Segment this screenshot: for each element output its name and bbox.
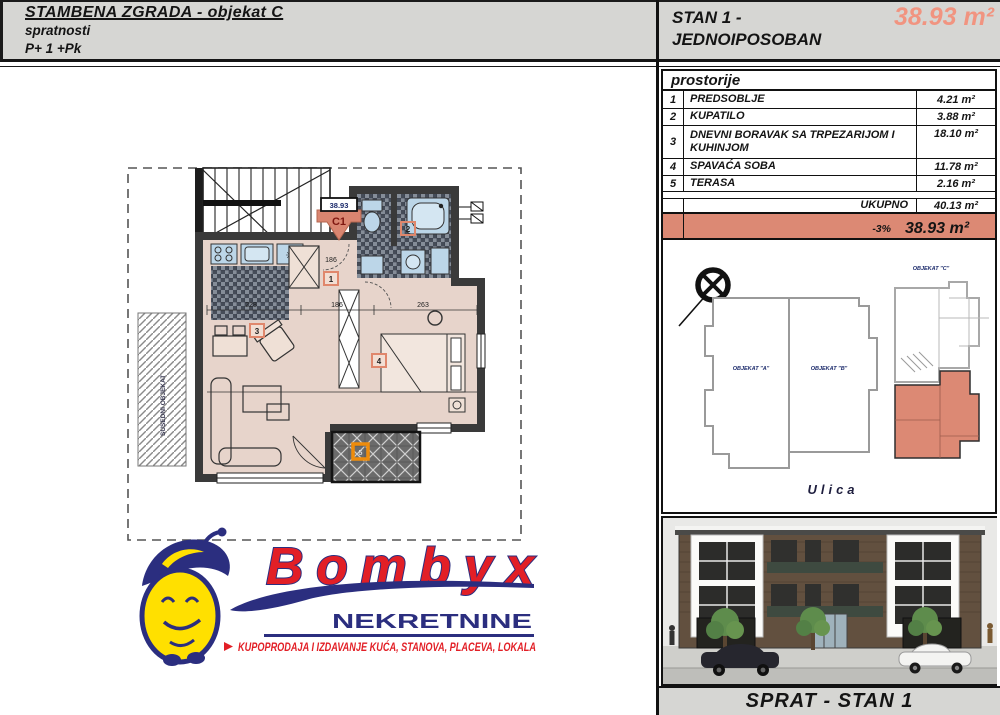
building-floors: P+ 1 +Pk xyxy=(25,40,656,58)
building-c-label: OBJEKAT "C" xyxy=(913,266,950,272)
table-row: 4 SPAVAĆA SOBA 11.78 m² xyxy=(663,159,995,176)
header-divider-line xyxy=(0,66,656,67)
table-row: 1 PREDSOBLJE 4.21 m² xyxy=(663,91,995,109)
building-a-label: OBJEKAT "A" xyxy=(733,366,770,372)
building-title: STAMBENA ZGRADA - objekat C xyxy=(25,4,656,22)
table-row: 5 TERASA 2.16 m² xyxy=(663,176,995,192)
svg-text:SUSEDNI OBJEKAT: SUSEDNI OBJEKAT xyxy=(160,375,167,436)
right-panel: STAN 1 - JEDNOIPOSOBAN 38.93 m² prostori… xyxy=(656,0,1000,715)
row-number: 2 xyxy=(663,109,684,125)
row-area: 4.21 m² xyxy=(916,91,995,108)
row-number: 4 xyxy=(663,159,684,175)
table-row: 3 DNEVNI BORAVAK SA TRPEZARIJOM I KUHINJ… xyxy=(663,126,995,159)
meter-symbols xyxy=(459,202,483,223)
svg-text:1: 1 xyxy=(329,275,334,284)
svg-text:38.93: 38.93 xyxy=(330,201,349,210)
agency-logo: Bombyx NEKRETNINE KUPOPRODAJA I IZDAVANJ… xyxy=(128,522,548,672)
neighbour-building-hatch: SUSEDNI OBJEKAT xyxy=(138,313,186,466)
svg-text:C1: C1 xyxy=(332,216,346,228)
bullet-arrow-icon xyxy=(224,642,233,651)
row-area: 3.88 m² xyxy=(916,109,995,125)
building-b-label: OBJEKAT "B" xyxy=(811,366,848,372)
row-name: DNEVNI BORAVAK SA TRPEZARIJOM I KUHINJOM xyxy=(684,126,916,158)
table-spacer xyxy=(663,192,995,199)
total-row: UKUPNO 40.13 m² xyxy=(663,199,995,214)
discount-area: 38.93 m² xyxy=(905,220,995,238)
row-name: TERASA xyxy=(684,176,916,191)
svg-text:2: 2 xyxy=(406,225,411,234)
row-area: 2.16 m² xyxy=(916,176,995,191)
unit-area: 38.93 m² xyxy=(894,3,994,32)
logo-rule xyxy=(264,634,534,637)
brand-tagline: KUPOPRODAJA I IZDAVANJE KUĆA, STANOVA, P… xyxy=(238,641,536,654)
unit-header-divider xyxy=(659,66,1000,67)
bathroom: 2 xyxy=(357,194,451,278)
row-area: 11.78 m² xyxy=(916,159,995,175)
footer-label: SPRAT - STAN 1 xyxy=(746,690,914,713)
rooms-table-caption: prostorije xyxy=(663,71,995,91)
floorplan-drawing: SUSEDNI OBJEKAT xyxy=(125,158,527,572)
unit-title-line2: JEDNOIPOSOBAN xyxy=(672,29,1000,51)
siteplan-box: OBJEKAT "C" OBJEKAT "A" OBJEKAT "B" Ulic… xyxy=(661,238,997,514)
svg-text:3: 3 xyxy=(255,327,260,336)
row-name: KUPATILO xyxy=(684,109,916,125)
row-name: PREDSOBLJE xyxy=(684,91,916,108)
building-header: STAMBENA ZGRADA - objekat C spratnosti P… xyxy=(0,0,656,62)
unit-header: STAN 1 - JEDNOIPOSOBAN 38.93 m² xyxy=(659,0,1000,62)
total-label: UKUPNO xyxy=(684,199,916,212)
discount-label: -3% xyxy=(663,223,905,235)
row-number: 1 xyxy=(663,91,684,108)
svg-text:186: 186 xyxy=(331,302,343,309)
building-c-outline xyxy=(895,282,989,458)
building-render xyxy=(663,518,997,684)
apartment-brochure-page: STAMBENA ZGRADA - objekat C spratnosti P… xyxy=(0,0,1000,715)
stairwell xyxy=(195,168,330,240)
svg-text:263: 263 xyxy=(417,302,429,309)
svg-text:5: 5 xyxy=(359,450,363,457)
street-label: Ulica xyxy=(807,482,858,497)
building-render-box xyxy=(661,516,997,686)
row-number: 5 xyxy=(663,176,684,191)
siteplan-drawing: OBJEKAT "C" OBJEKAT "A" OBJEKAT "B" Ulic… xyxy=(663,240,997,512)
row-number xyxy=(663,199,684,212)
terrace: 5 xyxy=(332,432,420,482)
footer-caption: SPRAT - STAN 1 xyxy=(659,686,1000,715)
svg-text:186: 186 xyxy=(325,257,337,264)
brand-subtitle: NEKRETNINE xyxy=(332,611,532,633)
table-row: 2 KUPATILO 3.88 m² xyxy=(663,109,995,126)
building-a-outline xyxy=(705,298,789,468)
building-b-outline xyxy=(789,298,877,452)
rooms-table: prostorije 1 PREDSOBLJE 4.21 m² 2 KUPATI… xyxy=(661,69,997,245)
svg-text:4: 4 xyxy=(377,357,382,366)
row-name: SPAVAĆA SOBA xyxy=(684,159,916,175)
highlighted-unit xyxy=(895,371,979,458)
row-number: 3 xyxy=(663,126,684,158)
svg-text:228: 228 xyxy=(245,302,257,309)
building-subtitle: spratnosti xyxy=(25,22,656,40)
row-area: 18.10 m² xyxy=(916,126,995,158)
silkworm-mascot xyxy=(142,528,230,667)
total-area: 40.13 m² xyxy=(916,199,995,212)
